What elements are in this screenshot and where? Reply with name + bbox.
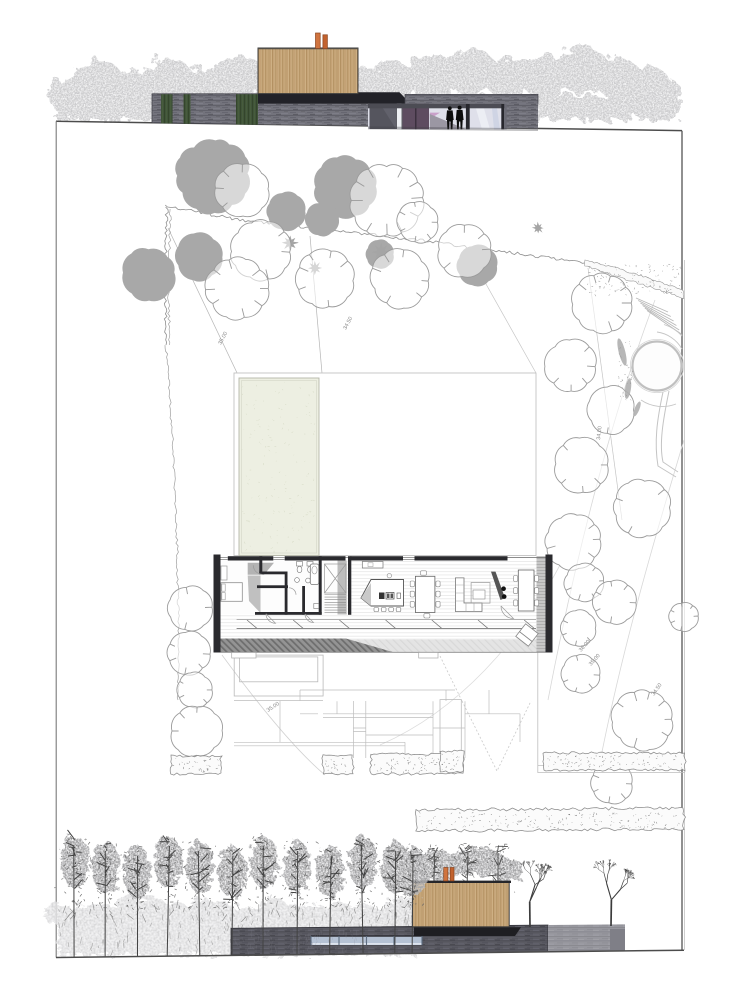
svg-text:35.00: 35.00 — [266, 701, 281, 714]
svg-text:34.50: 34.50 — [342, 316, 354, 331]
svg-text:35.00: 35.00 — [217, 331, 229, 346]
svg-text:34.50: 34.50 — [651, 682, 664, 697]
svg-text:34.00: 34.00 — [596, 426, 604, 440]
